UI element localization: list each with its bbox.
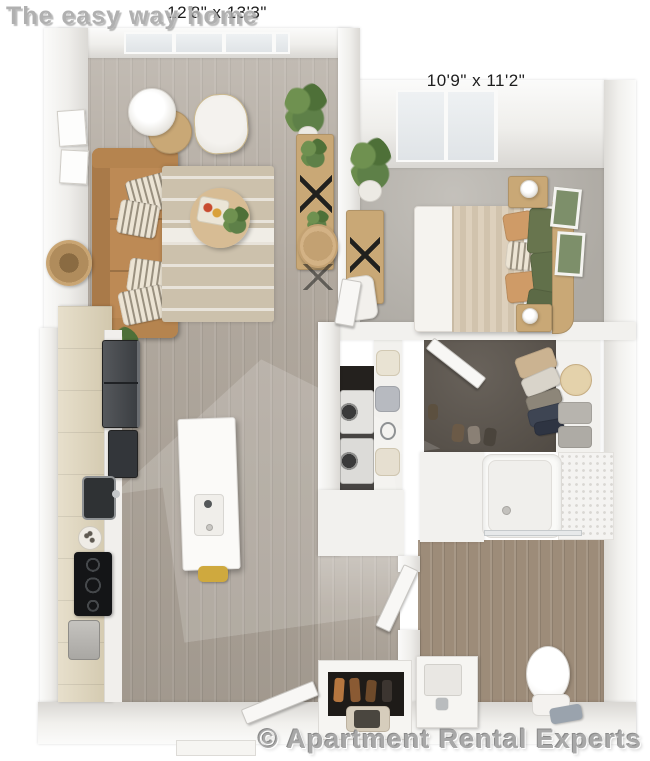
- floor-plan-render: 12'8" x 13'3" 10'9" x 11'2" The easy way…: [0, 0, 650, 761]
- kitchen-faucet: [112, 490, 120, 498]
- bedroom-dimension-label: 10'9" x 11'2": [394, 71, 558, 91]
- closet-basket-square-1: [558, 402, 592, 424]
- entry-step: [176, 740, 256, 756]
- kitchen-sink: [82, 476, 116, 520]
- sofa-pillow-2: [115, 199, 160, 239]
- nightstand-south-lamp: [522, 308, 538, 324]
- laundry-shelf-basket-1: [376, 350, 400, 376]
- vanity-sink-basin: [424, 664, 462, 696]
- laundry-faucet-icon: [380, 422, 396, 440]
- refrigerator: [102, 340, 140, 428]
- closet-shoe-1: [451, 423, 465, 442]
- closet-basket-square-2: [558, 426, 592, 448]
- entry-shoe-3: [365, 680, 377, 703]
- watermark-brand-top: The easy way home: [6, 2, 258, 31]
- laundry-shelf-basket-2: [375, 386, 400, 412]
- dryer: [340, 438, 374, 484]
- entry-shoe-4: [382, 680, 392, 702]
- coffee-table-plant: [222, 206, 250, 234]
- bedroom-art-2: [554, 231, 585, 277]
- bedroom-art-1: [550, 187, 582, 230]
- bathtub-basin: [488, 460, 552, 532]
- hanging-chair-legs: [302, 264, 334, 290]
- entry-shoe-2: [349, 678, 361, 703]
- bathtub-drain: [502, 506, 511, 515]
- watermark-copyright-bottom: © Apartment Rental Experts: [258, 724, 642, 755]
- island-faucet: [204, 500, 212, 508]
- wall-art-frame-1: [57, 109, 87, 147]
- fruit-bowl: [78, 526, 102, 550]
- wall-oven: [108, 430, 138, 478]
- coffee-maker: [68, 620, 100, 660]
- cooktop: [74, 552, 112, 616]
- shelf-plant-top: [300, 138, 328, 168]
- laundry-shelf-basket-3: [375, 448, 400, 476]
- wall-below-laundry: [318, 490, 404, 556]
- entry-shoe-1: [333, 678, 345, 703]
- island-drain: [206, 524, 213, 531]
- closet-basket-round: [560, 364, 592, 396]
- nightstand-north-lamp: [520, 180, 538, 198]
- closet-shoe-2: [467, 426, 481, 445]
- tub-tile-wall: [558, 452, 614, 540]
- island-stool: [198, 566, 228, 582]
- closet-shoe-4: [428, 404, 438, 420]
- washer: [340, 390, 374, 434]
- wall-tub-left: [420, 452, 484, 542]
- bedroom-plant-pot: [358, 180, 382, 202]
- bedroom-desk-legs: [350, 228, 380, 282]
- vanity-faucet: [436, 698, 448, 710]
- shower-glass: [484, 530, 582, 536]
- hanging-chair: [298, 224, 338, 268]
- armchair: [192, 92, 250, 156]
- refrigerator-split: [104, 382, 138, 384]
- wall-left-lower: [40, 328, 60, 704]
- wall-right: [604, 80, 636, 742]
- floor-lamp: [128, 88, 176, 136]
- living-room-window: [124, 32, 290, 54]
- wall-art-frame-2: [59, 149, 89, 184]
- round-wall-mirror: [46, 240, 92, 286]
- bedroom-window: [396, 90, 498, 162]
